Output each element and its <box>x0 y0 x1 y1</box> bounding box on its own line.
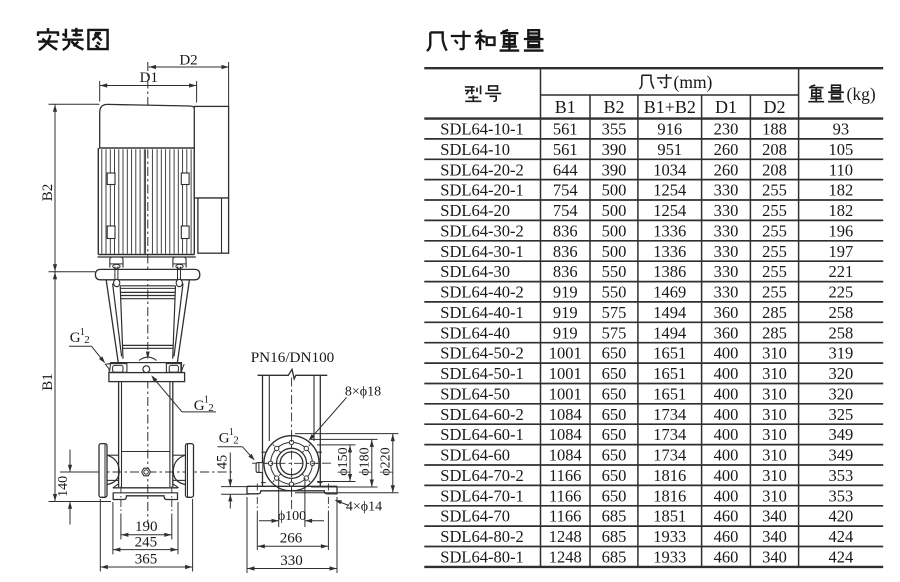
svg-text:1084: 1084 <box>549 425 582 444</box>
svg-text:SDL64-40-1: SDL64-40-1 <box>440 303 523 322</box>
svg-text:500: 500 <box>602 201 627 220</box>
svg-text:460: 460 <box>714 527 739 546</box>
svg-text:365: 365 <box>135 552 158 568</box>
svg-text:1084: 1084 <box>549 446 582 465</box>
svg-text:575: 575 <box>602 323 627 342</box>
svg-text:330: 330 <box>280 553 303 569</box>
svg-text:1933: 1933 <box>653 527 686 546</box>
svg-text:310: 310 <box>762 486 787 505</box>
svg-text:310: 310 <box>762 446 787 465</box>
svg-text:SDL64-40: SDL64-40 <box>440 323 510 342</box>
svg-text:400: 400 <box>714 405 739 424</box>
svg-text:330: 330 <box>714 283 739 302</box>
svg-text:500: 500 <box>602 181 627 200</box>
svg-text:2: 2 <box>233 434 239 446</box>
svg-text:400: 400 <box>714 466 739 485</box>
svg-text:644: 644 <box>553 160 578 179</box>
svg-text:1734: 1734 <box>653 446 686 465</box>
svg-text:550: 550 <box>602 283 627 302</box>
svg-text:SDL64-50-2: SDL64-50-2 <box>440 344 523 363</box>
svg-text:1933: 1933 <box>653 548 686 567</box>
svg-text:1166: 1166 <box>549 507 581 526</box>
svg-text:1816: 1816 <box>653 466 686 485</box>
svg-text:330: 330 <box>714 201 739 220</box>
svg-text:188: 188 <box>762 120 787 139</box>
svg-text:285: 285 <box>762 303 787 322</box>
svg-text:390: 390 <box>602 140 627 159</box>
svg-text:919: 919 <box>553 323 578 342</box>
svg-text:D2: D2 <box>764 97 786 117</box>
svg-text:349: 349 <box>829 425 854 444</box>
svg-text:340: 340 <box>762 527 787 546</box>
svg-text:951: 951 <box>657 140 682 159</box>
svg-text:255: 255 <box>762 221 787 240</box>
svg-text:1469: 1469 <box>653 283 686 302</box>
svg-text:1254: 1254 <box>653 201 686 220</box>
svg-text:1816: 1816 <box>653 486 686 505</box>
svg-text:561: 561 <box>553 140 578 159</box>
svg-text:SDL64-70-2: SDL64-70-2 <box>440 466 523 485</box>
svg-text:650: 650 <box>602 486 627 505</box>
svg-text:1851: 1851 <box>653 507 686 526</box>
svg-text:1001: 1001 <box>549 385 582 404</box>
svg-text:1001: 1001 <box>549 344 582 363</box>
svg-text:836: 836 <box>553 262 578 281</box>
svg-text:1336: 1336 <box>653 221 686 240</box>
svg-text:197: 197 <box>829 242 854 261</box>
svg-text:SDL64-30: SDL64-30 <box>440 262 510 281</box>
svg-text:(mm): (mm) <box>674 72 713 92</box>
svg-text:1651: 1651 <box>653 344 686 363</box>
svg-text:330: 330 <box>714 242 739 261</box>
svg-text:SDL64-50: SDL64-50 <box>440 385 510 404</box>
svg-text:SDL64-10: SDL64-10 <box>440 140 510 159</box>
svg-text:650: 650 <box>602 364 627 383</box>
svg-text:400: 400 <box>714 446 739 465</box>
svg-text:685: 685 <box>602 548 627 567</box>
svg-text:8×ϕ18: 8×ϕ18 <box>345 385 381 400</box>
svg-text:1651: 1651 <box>653 385 686 404</box>
svg-text:500: 500 <box>602 242 627 261</box>
svg-text:330: 330 <box>714 221 739 240</box>
svg-text:1734: 1734 <box>653 405 686 424</box>
svg-text:SDL64-60: SDL64-60 <box>440 446 510 465</box>
svg-text:310: 310 <box>762 344 787 363</box>
svg-text:SDL64-60-2: SDL64-60-2 <box>440 405 523 424</box>
svg-text:1494: 1494 <box>653 303 686 322</box>
svg-text:1001: 1001 <box>549 364 582 383</box>
svg-text:190: 190 <box>135 519 158 535</box>
svg-text:230: 230 <box>714 120 739 139</box>
svg-text:(kg): (kg) <box>847 84 876 104</box>
svg-text:ϕ100: ϕ100 <box>278 509 306 524</box>
svg-text:260: 260 <box>714 140 739 159</box>
svg-text:110: 110 <box>829 160 853 179</box>
svg-text:B1: B1 <box>40 373 56 391</box>
svg-text:349: 349 <box>829 446 854 465</box>
svg-text:650: 650 <box>602 425 627 444</box>
svg-text:836: 836 <box>553 242 578 261</box>
svg-text:1386: 1386 <box>653 262 686 281</box>
svg-text:836: 836 <box>553 221 578 240</box>
svg-text:360: 360 <box>714 323 739 342</box>
svg-text:258: 258 <box>829 323 854 342</box>
svg-text:182: 182 <box>829 201 854 220</box>
svg-text:919: 919 <box>553 283 578 302</box>
svg-text:258: 258 <box>829 303 854 322</box>
svg-text:SDL64-20-2: SDL64-20-2 <box>440 160 523 179</box>
svg-text:255: 255 <box>762 283 787 302</box>
svg-text:245: 245 <box>135 534 158 550</box>
svg-text:310: 310 <box>762 405 787 424</box>
svg-text:650: 650 <box>602 466 627 485</box>
svg-text:B1+B2: B1+B2 <box>644 97 696 117</box>
svg-text:ϕ180: ϕ180 <box>358 447 373 475</box>
svg-text:561: 561 <box>553 120 578 139</box>
svg-text:255: 255 <box>762 201 787 220</box>
svg-text:353: 353 <box>829 486 854 505</box>
svg-text:310: 310 <box>762 466 787 485</box>
svg-text:285: 285 <box>762 323 787 342</box>
svg-text:SDL64-50-1: SDL64-50-1 <box>440 364 523 383</box>
svg-text:685: 685 <box>602 507 627 526</box>
svg-text:SDL64-10-1: SDL64-10-1 <box>440 120 523 139</box>
svg-text:1248: 1248 <box>549 527 582 546</box>
svg-text:460: 460 <box>714 507 739 526</box>
svg-text:208: 208 <box>762 140 787 159</box>
svg-text:650: 650 <box>602 446 627 465</box>
svg-text:225: 225 <box>829 283 854 302</box>
svg-text:420: 420 <box>829 507 854 526</box>
svg-text:SDL64-80-1: SDL64-80-1 <box>440 548 523 567</box>
svg-text:196: 196 <box>829 221 854 240</box>
svg-text:260: 260 <box>714 160 739 179</box>
svg-text:320: 320 <box>829 385 854 404</box>
svg-text:330: 330 <box>714 262 739 281</box>
svg-text:SDL64-70-1: SDL64-70-1 <box>440 486 523 505</box>
svg-text:310: 310 <box>762 364 787 383</box>
svg-text:1734: 1734 <box>653 425 686 444</box>
svg-text:SDL64-30-1: SDL64-30-1 <box>440 242 523 261</box>
svg-text:310: 310 <box>762 385 787 404</box>
svg-text:916: 916 <box>657 120 682 139</box>
svg-text:93: 93 <box>833 120 850 139</box>
svg-text:400: 400 <box>714 344 739 363</box>
svg-text:320: 320 <box>829 364 854 383</box>
svg-text:ϕ150: ϕ150 <box>336 447 351 475</box>
svg-text:266: 266 <box>280 531 303 547</box>
svg-text:SDL64-20: SDL64-20 <box>440 201 510 220</box>
svg-text:SDL64-20-1: SDL64-20-1 <box>440 181 523 200</box>
svg-text:460: 460 <box>714 548 739 567</box>
svg-text:1084: 1084 <box>549 405 582 424</box>
svg-text:1248: 1248 <box>549 548 582 567</box>
svg-text:255: 255 <box>762 262 787 281</box>
svg-text:B2: B2 <box>40 184 56 202</box>
svg-text:SDL64-60-1: SDL64-60-1 <box>440 425 523 444</box>
svg-text:353: 353 <box>829 466 854 485</box>
svg-text:1034: 1034 <box>653 160 686 179</box>
svg-text:1494: 1494 <box>653 323 686 342</box>
svg-text:1336: 1336 <box>653 242 686 261</box>
svg-text:182: 182 <box>829 181 854 200</box>
svg-text:255: 255 <box>762 242 787 261</box>
svg-text:650: 650 <box>602 405 627 424</box>
svg-text:D2: D2 <box>179 53 197 69</box>
svg-text:140: 140 <box>56 476 71 497</box>
svg-text:650: 650 <box>602 344 627 363</box>
svg-text:685: 685 <box>602 527 627 546</box>
svg-text:105: 105 <box>829 140 854 159</box>
svg-text:4×ϕ14: 4×ϕ14 <box>346 499 382 514</box>
svg-text:PN16/DN100: PN16/DN100 <box>251 349 335 366</box>
svg-text:340: 340 <box>762 548 787 567</box>
svg-text:550: 550 <box>602 262 627 281</box>
svg-text:340: 340 <box>762 507 787 526</box>
svg-text:SDL64-80-2: SDL64-80-2 <box>440 527 523 546</box>
svg-text:919: 919 <box>553 303 578 322</box>
svg-text:1166: 1166 <box>549 466 581 485</box>
svg-text:400: 400 <box>714 486 739 505</box>
svg-text:B2: B2 <box>603 97 624 117</box>
svg-text:400: 400 <box>714 364 739 383</box>
svg-text:355: 355 <box>602 120 627 139</box>
svg-text:400: 400 <box>714 385 739 404</box>
svg-text:360: 360 <box>714 303 739 322</box>
svg-text:221: 221 <box>829 262 854 281</box>
svg-text:424: 424 <box>829 548 854 567</box>
svg-text:45: 45 <box>214 455 230 470</box>
svg-text:400: 400 <box>714 425 739 444</box>
svg-text:325: 325 <box>829 405 854 424</box>
svg-text:319: 319 <box>829 344 854 363</box>
svg-text:330: 330 <box>714 181 739 200</box>
svg-text:208: 208 <box>762 160 787 179</box>
svg-text:SDL64-30-2: SDL64-30-2 <box>440 221 523 240</box>
svg-text:754: 754 <box>553 201 578 220</box>
svg-text:2: 2 <box>84 334 90 346</box>
svg-text:255: 255 <box>762 181 787 200</box>
svg-text:500: 500 <box>602 221 627 240</box>
svg-text:D1: D1 <box>715 97 737 117</box>
svg-text:650: 650 <box>602 385 627 404</box>
svg-text:424: 424 <box>829 527 854 546</box>
svg-text:B1: B1 <box>555 97 576 117</box>
svg-text:1166: 1166 <box>549 486 581 505</box>
svg-text:D1: D1 <box>140 70 158 86</box>
svg-text:390: 390 <box>602 160 627 179</box>
svg-text:SDL64-70: SDL64-70 <box>440 507 510 526</box>
svg-text:SDL64-40-2: SDL64-40-2 <box>440 283 523 302</box>
svg-text:ϕ220: ϕ220 <box>379 447 394 475</box>
svg-text:575: 575 <box>602 303 627 322</box>
svg-text:754: 754 <box>553 181 578 200</box>
svg-text:1651: 1651 <box>653 364 686 383</box>
svg-text:310: 310 <box>762 425 787 444</box>
svg-text:1254: 1254 <box>653 181 686 200</box>
